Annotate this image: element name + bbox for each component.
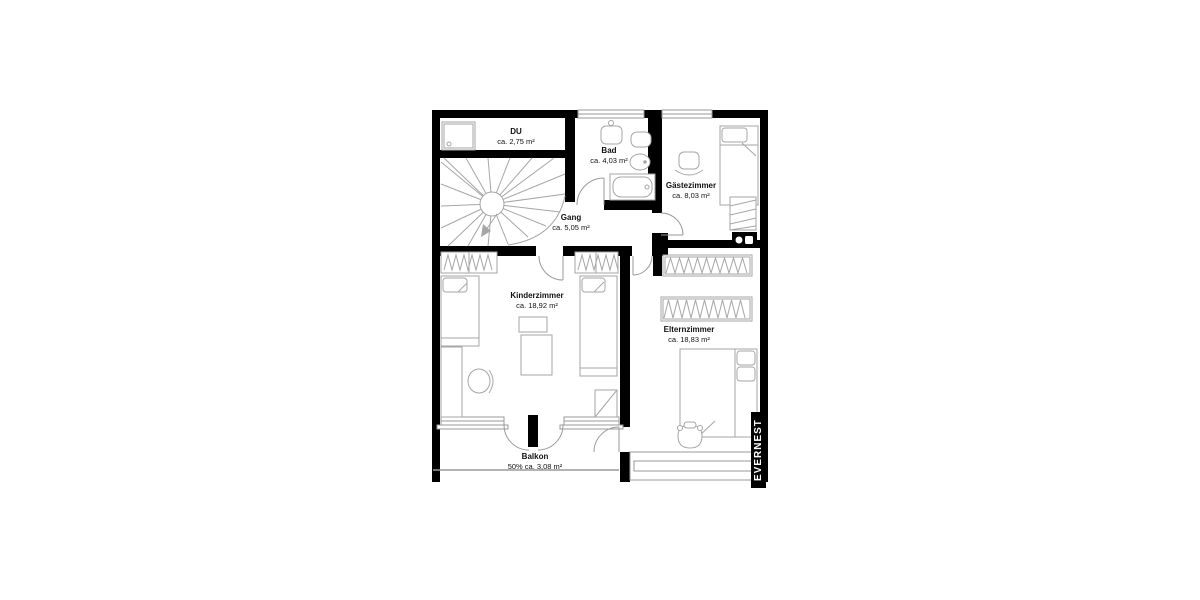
window-gaestezimmer (662, 110, 712, 118)
wall-du-bottom (432, 150, 575, 158)
room-name-gaestezimmer: Gästezimmer (666, 181, 716, 191)
room-label-bad: Bad ca. 4,03 m² (590, 146, 628, 166)
wall-divider-pier (620, 452, 630, 482)
kinder-bed-left (441, 276, 479, 346)
room-area-elternzimmer: ca. 18,83 m² (664, 335, 715, 345)
wardrobe-eltern-bottom (661, 297, 752, 321)
room-area-gaestezimmer: ca. 8,03 m² (666, 191, 716, 201)
door-bad (577, 178, 604, 205)
wall-room-divider (620, 256, 630, 427)
room-label-du: DU ca. 2,75 m² (497, 127, 535, 147)
armchair-icon (678, 422, 703, 448)
wardrobe-kinder-right (575, 252, 618, 273)
wall-bad-left (565, 110, 575, 202)
kinder-bed-right (580, 276, 617, 376)
room-area-gang: ca. 5,05 m² (552, 223, 590, 233)
elternzimmer-furniture (661, 255, 757, 448)
door-kinderzimmer (539, 256, 563, 280)
room-name-balkon: Balkon (508, 452, 563, 462)
window-bad (578, 110, 644, 118)
staircase-center (480, 192, 504, 216)
room-label-gang: Gang ca. 5,05 m² (552, 213, 590, 233)
guest-bed (720, 126, 758, 205)
kinder-desk (441, 347, 462, 417)
floorplan-canvas: DU ca. 2,75 m² Bad ca. 4,03 m² Gästezimm… (0, 0, 1200, 600)
room-area-balkon: 50% ca. 3,08 m² (508, 462, 563, 472)
chimney-icon (732, 232, 757, 248)
door-elternzimmer (633, 256, 652, 275)
door-balcony-right (538, 425, 563, 450)
room-name-elternzimmer: Elternzimmer (664, 325, 715, 335)
door-gaestezimmer (661, 213, 683, 235)
sink-icon (601, 121, 622, 145)
gaestezimmer-furniture (675, 126, 758, 230)
kinder-chair-icon (468, 369, 493, 393)
room-name-gang: Gang (552, 213, 590, 223)
wall-top-right (712, 110, 760, 118)
staircase (441, 158, 565, 246)
shelf-ladder-icon (730, 197, 756, 230)
bathtub-icon (610, 174, 655, 200)
kinderzimmer-furniture (441, 252, 618, 417)
kinder-table (519, 317, 552, 375)
room-area-kinderzimmer: ca. 18,92 m² (510, 301, 563, 311)
floorplan-drawing (0, 0, 1200, 600)
room-label-kinderzimmer: Kinderzimmer ca. 18,92 m² (510, 291, 563, 311)
shower-icon (442, 122, 475, 150)
room-label-gaestezimmer: Gästezimmer ca. 8,03 m² (666, 181, 716, 201)
wall-bad-bottom (604, 200, 662, 210)
wall-wardrobe-stub (653, 248, 662, 276)
wardrobe-eltern-top (663, 255, 752, 276)
room-area-du: ca. 2,75 m² (497, 137, 535, 147)
kinder-nightstand (595, 390, 617, 417)
room-name-du: DU (497, 127, 535, 137)
wall-balcony-pier (528, 415, 538, 447)
window-kinderzimmer-left (437, 417, 508, 429)
wall-top-left (432, 110, 578, 118)
wardrobe-kinder-left (441, 252, 497, 273)
room-area-bad: ca. 4,03 m² (590, 156, 628, 166)
room-name-kinderzimmer: Kinderzimmer (510, 291, 563, 301)
window-elternzimmer (630, 452, 760, 480)
door-elternzimmer-balcony (594, 427, 619, 452)
room-label-balkon: Balkon 50% ca. 3,08 m² (508, 452, 563, 472)
watermark-evernest: EVERNEST (751, 412, 766, 488)
room-label-elternzimmer: Elternzimmer ca. 18,83 m² (664, 325, 715, 345)
desk-chair-icon (675, 152, 703, 175)
toilet-icon (630, 132, 651, 170)
room-name-bad: Bad (590, 146, 628, 156)
